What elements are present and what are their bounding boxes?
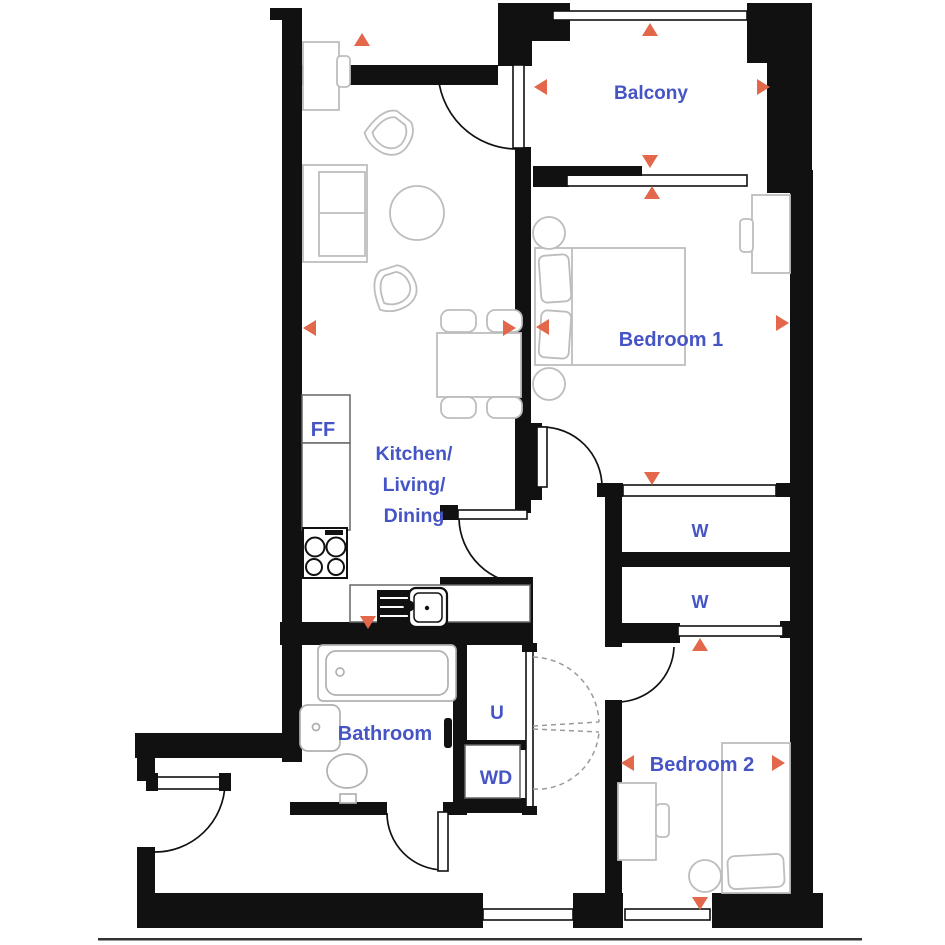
balcony-slider-panel bbox=[567, 166, 642, 176]
bedroom2-arrow-up bbox=[692, 638, 708, 651]
bottom-divider-line bbox=[98, 938, 862, 941]
cupboard-door-swings bbox=[533, 657, 599, 789]
wardrobe1-label: W bbox=[692, 521, 709, 541]
bedroom2-label: Bedroom 2 bbox=[650, 754, 754, 776]
bedroom2-arrow-left bbox=[621, 755, 634, 771]
wall-right bbox=[790, 170, 813, 928]
entry-door-leaf bbox=[152, 777, 225, 789]
bed1-side-table-top bbox=[533, 217, 565, 249]
bed2-pillow bbox=[727, 854, 785, 890]
utility-front-cap-bottom bbox=[522, 806, 537, 815]
wall-bedroom1-bottom-jamb-right bbox=[776, 483, 790, 497]
toilet-cistern bbox=[340, 794, 356, 803]
window-bottom-right bbox=[625, 909, 710, 920]
bathroom-door-arc bbox=[387, 813, 444, 870]
wardrobe1-front bbox=[623, 485, 776, 496]
bedroom1-arrow-up bbox=[644, 186, 660, 199]
wall-bottom-3 bbox=[712, 893, 823, 928]
sink-tap bbox=[404, 601, 415, 612]
utility-label: U bbox=[490, 703, 504, 724]
wall-balcony-right-block-2 bbox=[767, 38, 812, 193]
wall-kitchen-bathroom bbox=[280, 622, 533, 645]
bed1-desk-chair bbox=[740, 219, 753, 252]
balcony-label: Balcony bbox=[614, 83, 688, 104]
basin-tap bbox=[313, 724, 320, 731]
living-door-leaf bbox=[458, 510, 527, 519]
bedroom2-door-arc bbox=[617, 647, 674, 702]
sofa-cushions bbox=[319, 172, 365, 256]
wardrobe2-front bbox=[678, 626, 783, 636]
balcony-arrow-down bbox=[642, 155, 658, 168]
balcony-rail bbox=[553, 11, 747, 20]
fridge-freezer-label: FF bbox=[311, 419, 335, 441]
towel-rail bbox=[444, 718, 452, 748]
dining-chair-4 bbox=[487, 397, 522, 418]
bathtub-tap bbox=[336, 668, 344, 676]
wardrobe2-label: W bbox=[692, 592, 709, 612]
bed2-side-table bbox=[689, 860, 721, 892]
wall-entry-top bbox=[135, 733, 302, 758]
utility-wd-front bbox=[526, 647, 533, 811]
wall-block-top-center-2 bbox=[498, 3, 532, 66]
bedroom1-label: Bedroom 1 bbox=[619, 329, 723, 351]
bedroom1-door-leaf bbox=[537, 427, 547, 487]
wall-balcony-bottom-left-block bbox=[533, 166, 569, 187]
kitchen-label-line3: Dining bbox=[384, 505, 445, 527]
floorplan-page: Balcony Bedroom 1 Kitchen/ Living/ Dinin… bbox=[0, 0, 945, 945]
entry-door-arc bbox=[154, 784, 225, 852]
wall-left-end-cap bbox=[270, 8, 282, 20]
wd-door-leaf bbox=[533, 729, 599, 732]
entry-leaf-cap-right bbox=[219, 773, 231, 791]
window-balcony-bedroom1 bbox=[567, 175, 747, 186]
wall-wardrobe2-left-chunk bbox=[620, 623, 680, 643]
bedroom1-arrow-right bbox=[776, 315, 789, 331]
bedroom2-arrow-down bbox=[692, 897, 708, 910]
bed2-desk-chair bbox=[656, 804, 669, 837]
wall-entry-left-lower bbox=[137, 847, 155, 897]
bedroom1-arrow-down bbox=[644, 472, 660, 485]
sink-drain-dot bbox=[425, 606, 429, 610]
balcony-arrow-up bbox=[642, 23, 658, 36]
wall-wardrobe-divider bbox=[615, 552, 790, 567]
living-arrow-up bbox=[354, 33, 370, 46]
bed1-pillow-top bbox=[538, 254, 571, 303]
bedroom1-door-arc bbox=[542, 427, 602, 487]
dining-chair-1 bbox=[441, 310, 476, 332]
wd-door-arc bbox=[533, 732, 599, 789]
living-desk bbox=[303, 42, 339, 110]
bed1-side-table-bottom bbox=[533, 368, 565, 400]
living-door-arc bbox=[459, 519, 526, 584]
armchair-middle bbox=[368, 262, 421, 316]
entry-leaf-cap-left bbox=[146, 773, 158, 791]
wall-hall-wardrobe-upper bbox=[605, 485, 622, 647]
hob bbox=[303, 528, 347, 578]
wall-bottom-1 bbox=[137, 893, 483, 928]
bed1-pillow-bottom bbox=[538, 310, 571, 359]
dining-table bbox=[437, 333, 521, 397]
floorplan-svg: Balcony Bedroom 1 Kitchen/ Living/ Dinin… bbox=[0, 0, 945, 945]
coffee-table bbox=[390, 186, 444, 240]
balcony-arrow-left bbox=[534, 79, 547, 95]
utility-front-cap-top bbox=[522, 643, 537, 652]
dining-chair-3 bbox=[441, 397, 476, 418]
living-arrow-left bbox=[303, 320, 316, 336]
utility-door-arc bbox=[533, 657, 599, 722]
living-desk-chair bbox=[337, 56, 350, 87]
armchair-top bbox=[361, 103, 421, 163]
kitchen-label-line1: Kitchen/ bbox=[376, 443, 454, 465]
washer-dryer-label: WD bbox=[480, 767, 513, 789]
balcony-door-leaf bbox=[513, 65, 524, 148]
wall-left bbox=[282, 8, 302, 762]
bed2-desk bbox=[618, 783, 656, 860]
wall-bottom-2 bbox=[573, 893, 623, 928]
window-bottom-left bbox=[483, 909, 573, 920]
bathroom-label: Bathroom bbox=[338, 723, 432, 745]
toilet-bowl bbox=[327, 754, 367, 788]
utility-door-leaf bbox=[533, 722, 599, 726]
hob-control-bar bbox=[325, 530, 343, 535]
wall-bathroom-bottom bbox=[290, 802, 387, 815]
bathroom-door-leaf bbox=[438, 812, 448, 871]
bed1-desk bbox=[752, 195, 790, 273]
kitchen-label-line2: Living/ bbox=[383, 474, 446, 496]
kitchen-counter-left bbox=[302, 443, 350, 530]
